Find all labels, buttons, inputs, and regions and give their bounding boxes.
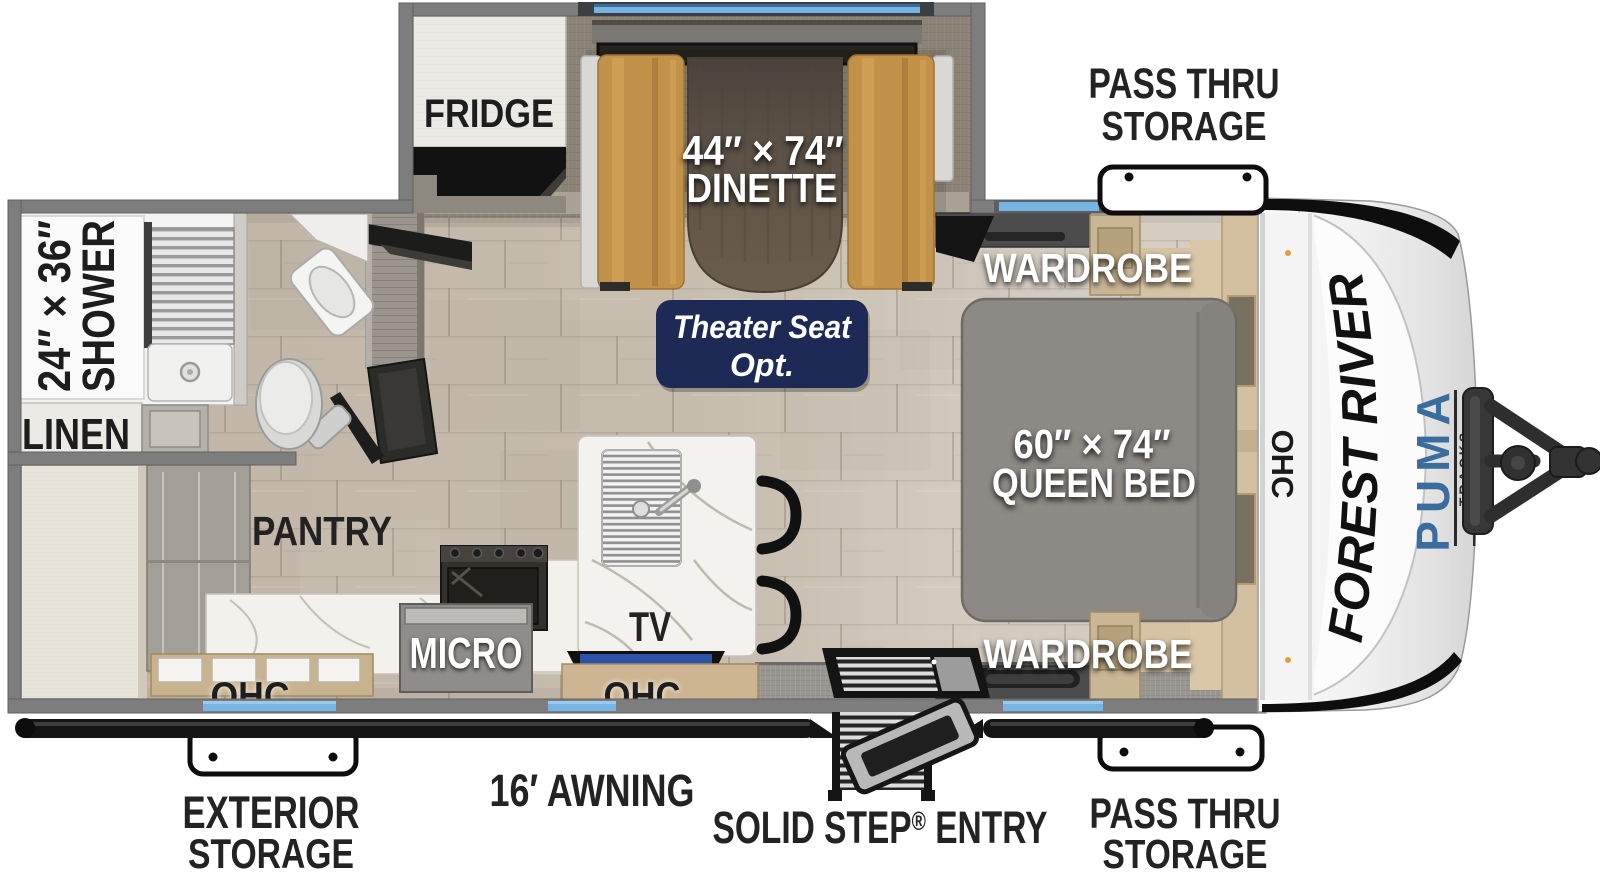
svg-text:MICRO: MICRO [410, 629, 523, 678]
svg-text:OHC: OHC [1265, 430, 1300, 499]
svg-text:16′ AWNING: 16′ AWNING [490, 765, 695, 816]
svg-text:TV: TV [629, 603, 671, 650]
svg-text:STORAGE: STORAGE [1102, 103, 1267, 149]
svg-text:STORAGE: STORAGE [188, 830, 354, 877]
svg-text:Theater Seat: Theater Seat [673, 309, 852, 345]
svg-text:PANTRY: PANTRY [252, 508, 392, 554]
svg-text:WARDROBE: WARDROBE [984, 631, 1193, 677]
svg-text:PUMA: PUMA [1407, 384, 1459, 551]
svg-text:DINETTE: DINETTE [687, 165, 838, 211]
svg-text:STORAGE: STORAGE [1103, 831, 1268, 877]
svg-text:PASS THRU: PASS THRU [1089, 60, 1280, 108]
svg-text:WARDROBE: WARDROBE [984, 245, 1193, 291]
svg-text:SHOWER: SHOWER [73, 220, 124, 392]
svg-text:FRIDGE: FRIDGE [424, 92, 554, 136]
svg-text:Opt.: Opt. [730, 347, 794, 383]
svg-text:SOLID STEP® ENTRY: SOLID STEP® ENTRY [713, 802, 1048, 853]
svg-text:QUEEN BED: QUEEN BED [992, 460, 1196, 506]
